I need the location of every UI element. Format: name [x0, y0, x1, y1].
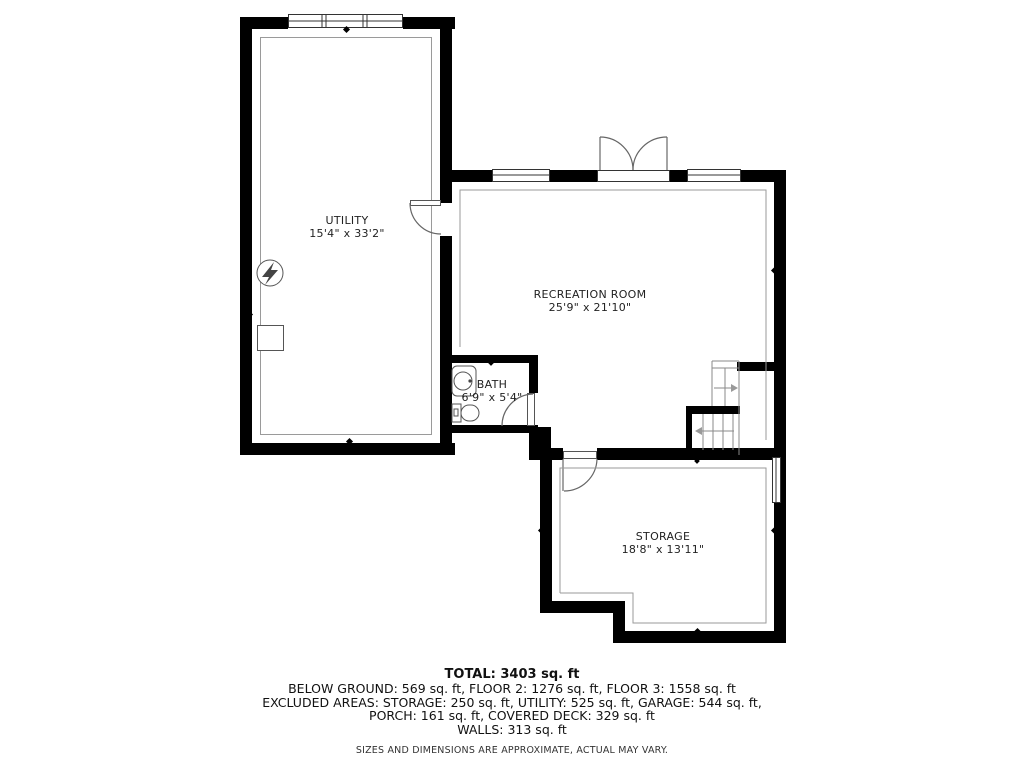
- room-dims: 18'8" x 13'11": [622, 543, 705, 556]
- wall-bath-bottom: [445, 425, 538, 433]
- french-door-threshold: [597, 170, 670, 182]
- storage-door-leaf: [563, 451, 597, 459]
- utility-window: [288, 14, 403, 28]
- storage-door-swing-arc: [564, 459, 597, 491]
- room-name: BATH: [462, 378, 523, 391]
- total-area: TOTAL: 3403 sq. ft: [0, 668, 1024, 682]
- stairs-arrow-right-icon: [731, 384, 738, 392]
- floors-areas: BELOW GROUND: 569 sq. ft, FLOOR 2: 1276 …: [0, 682, 1024, 696]
- wall-storage-left: [540, 460, 552, 613]
- area-summary: TOTAL: 3403 sq. ft BELOW GROUND: 569 sq.…: [0, 668, 1024, 756]
- wall-utility-right-lower: [440, 236, 452, 455]
- wall-bath-top: [440, 355, 538, 363]
- wall-utility-left: [240, 17, 252, 455]
- storage-window: [772, 457, 781, 503]
- wall-rec-top-c: [667, 170, 687, 182]
- room-label-utility: UTILITY 15'4" x 33'2": [309, 214, 385, 240]
- room-label-bath: BATH 6'9" x 5'4": [462, 378, 523, 404]
- wall-stairs-mid-h: [686, 406, 740, 414]
- wall-utility-bottom: [240, 443, 455, 455]
- wall-utility-right-upper: [440, 17, 452, 203]
- french-door-right-arc: [633, 137, 667, 170]
- wall-bath-storage-joint: [529, 427, 551, 460]
- rec-window-left: [492, 169, 550, 182]
- room-dims: 25'9" x 21'10": [534, 301, 647, 314]
- wall-rec-top-b: [550, 170, 600, 182]
- utility-door-leaf: [410, 200, 441, 206]
- stairs-arrow-left-icon: [695, 427, 702, 435]
- room-label-storage: STORAGE 18'8" x 13'11": [622, 530, 705, 556]
- wall-right-exterior: [774, 170, 786, 643]
- room-label-recreation: RECREATION ROOM 25'9" x 21'10": [534, 288, 647, 314]
- wall-stairs-mid-v: [686, 406, 692, 457]
- disclaimer-text: SIZES AND DIMENSIONS ARE APPROXIMATE, AC…: [0, 745, 1024, 756]
- room-name: UTILITY: [309, 214, 385, 227]
- sump-pit-symbol: [257, 325, 284, 351]
- bath-door-leaf: [527, 393, 535, 426]
- room-name: RECREATION ROOM: [534, 288, 647, 301]
- wall-rec-top-a: [452, 170, 492, 182]
- wall-storage-bottom: [613, 631, 786, 643]
- rec-window-right: [687, 169, 741, 182]
- room-name: STORAGE: [622, 530, 705, 543]
- toilet-icon: [452, 404, 479, 422]
- room-dims: 15'4" x 33'2": [309, 227, 385, 240]
- walls-area: WALLS: 313 sq. ft: [0, 723, 1024, 737]
- wall-utility-top-a: [240, 17, 288, 29]
- french-door-left-arc: [600, 137, 633, 170]
- excluded-areas-2: PORCH: 161 sq. ft, COVERED DECK: 329 sq.…: [0, 709, 1024, 723]
- floor-plan: UTILITY 15'4" x 33'2" RECREATION ROOM 25…: [0, 0, 1024, 768]
- wall-stairs-top: [737, 362, 778, 371]
- wall-bath-right-upper: [529, 355, 538, 393]
- room-dims: 6'9" x 5'4": [462, 391, 523, 404]
- excluded-areas-1: EXCLUDED AREAS: STORAGE: 250 sq. ft, UTI…: [0, 696, 1024, 710]
